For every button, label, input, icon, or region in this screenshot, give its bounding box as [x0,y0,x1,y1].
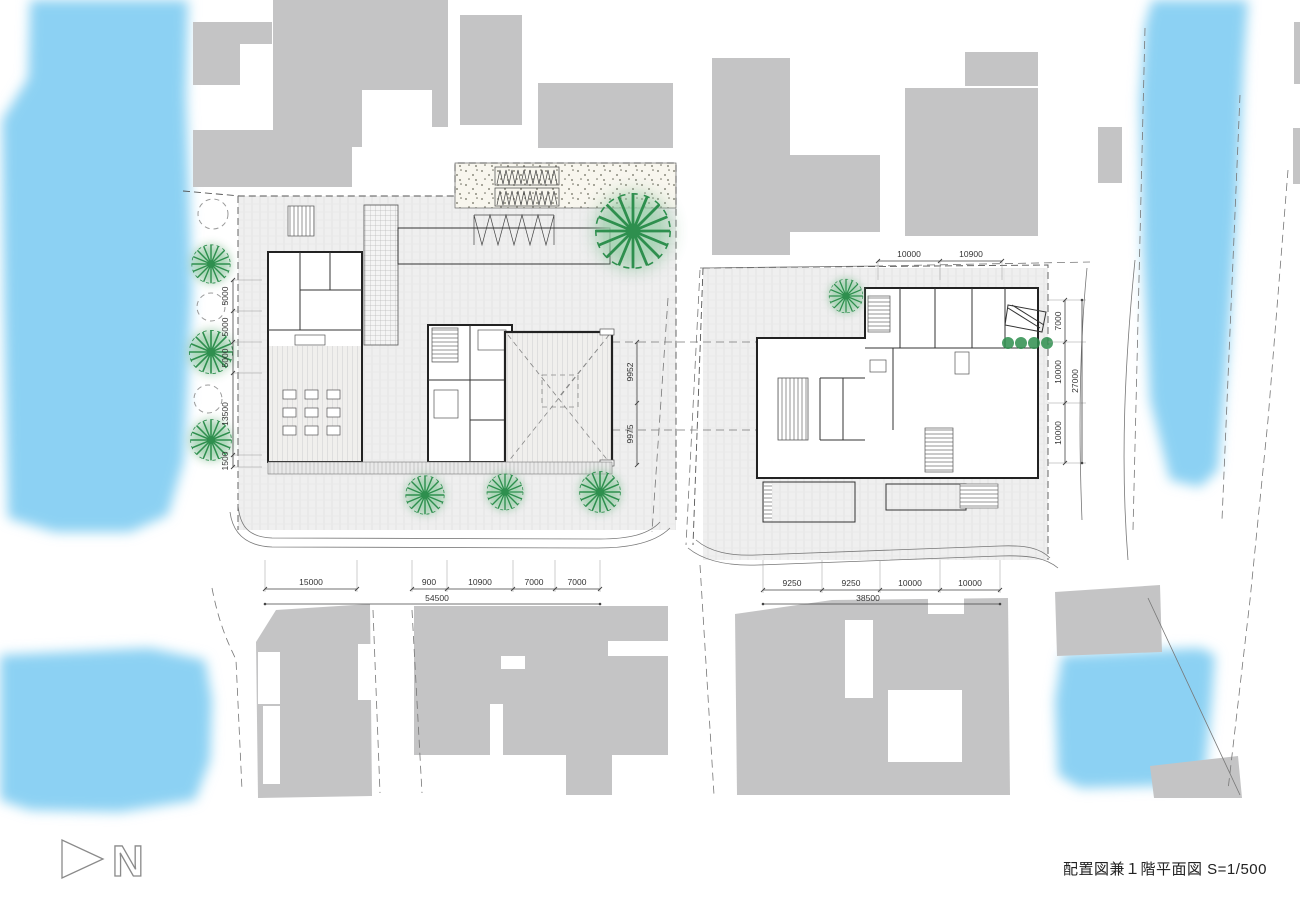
tree-outline-icon [194,385,222,413]
stair-icon [925,428,953,472]
bush-icon [1016,338,1027,349]
context-building [712,58,880,255]
north-label: N [112,837,144,886]
context-building [905,88,1038,236]
bush-icon [1003,338,1014,349]
context-building [965,52,1038,86]
dining-tables [283,390,340,435]
dim-label: 9250 [783,578,802,588]
dim-label: 7000 [1053,311,1063,330]
dim-label: 10000 [958,578,982,588]
tree-icon [406,476,444,514]
dim-label: 5000 [220,286,230,305]
context-building [238,22,272,44]
dim-label: 13500 [220,402,230,426]
dim-label: 1500 [220,451,230,470]
dim-label: 9975 [625,424,635,443]
context-building [1294,22,1300,84]
dim-total-label: 54500 [425,593,449,603]
dim-label: 9952 [625,362,635,381]
drawing-title: 配置図兼１階平面図 S=1/500 [1063,861,1267,878]
dim-label: 10000 [897,249,921,259]
context-building [414,606,668,755]
dim-label: 10900 [468,577,492,587]
dim-label: 10000 [1053,421,1063,445]
stair-icon [960,484,998,508]
context-building [193,22,240,85]
dim-label: 10000 [898,578,922,588]
context-building [273,0,362,147]
east-road-curve [1080,260,1135,560]
deck-striped [778,378,808,440]
site-plan-drawing: 5000 5000 5000 13500 1500 15000 900 1090… [0,0,1300,924]
north-indicator: N [62,837,144,886]
dimension-bottom-left: 15000 900 10900 7000 7000 54500 [263,560,602,605]
bush-icon [1029,338,1040,349]
tree-outline-icon [198,199,228,229]
tree-icon [596,194,670,268]
water-area-left [2,0,192,532]
context-building [1098,127,1122,183]
dim-label: 5000 [220,348,230,367]
dim-total-label: 38500 [856,593,880,603]
tree-icon [192,245,230,283]
dim-label: 15000 [299,577,323,587]
context-building [1293,128,1300,184]
water-area-top-right [1140,0,1248,487]
dim-label: 5000 [220,317,230,336]
stair-icon [432,328,458,362]
stair-icon [764,484,772,520]
entry-walkway-grid [364,205,398,345]
bush-icon [1042,338,1053,349]
context-building [193,130,352,187]
entry-steps [288,206,314,236]
context-building [538,83,673,148]
tree-icon [580,472,621,513]
north-arrow-icon [62,840,103,878]
stair-icon [868,296,890,332]
dim-label: 7000 [525,577,544,587]
water-area-bottom-left [0,648,212,812]
dim-label: 9250 [842,578,861,588]
dim-label: 900 [422,577,436,587]
context-building [566,745,612,795]
dim-label: 7000 [568,577,587,587]
dining-area-floor [269,346,361,461]
dim-total-label: 27000 [1070,369,1080,393]
south-terrace-hatch [268,462,612,474]
context-building [1055,585,1162,656]
context-building [460,15,522,125]
tree-icon [829,279,863,313]
dim-label: 10900 [959,249,983,259]
tree-icon [487,474,523,510]
dim-label: 10000 [1053,360,1063,384]
context-building [432,0,448,127]
